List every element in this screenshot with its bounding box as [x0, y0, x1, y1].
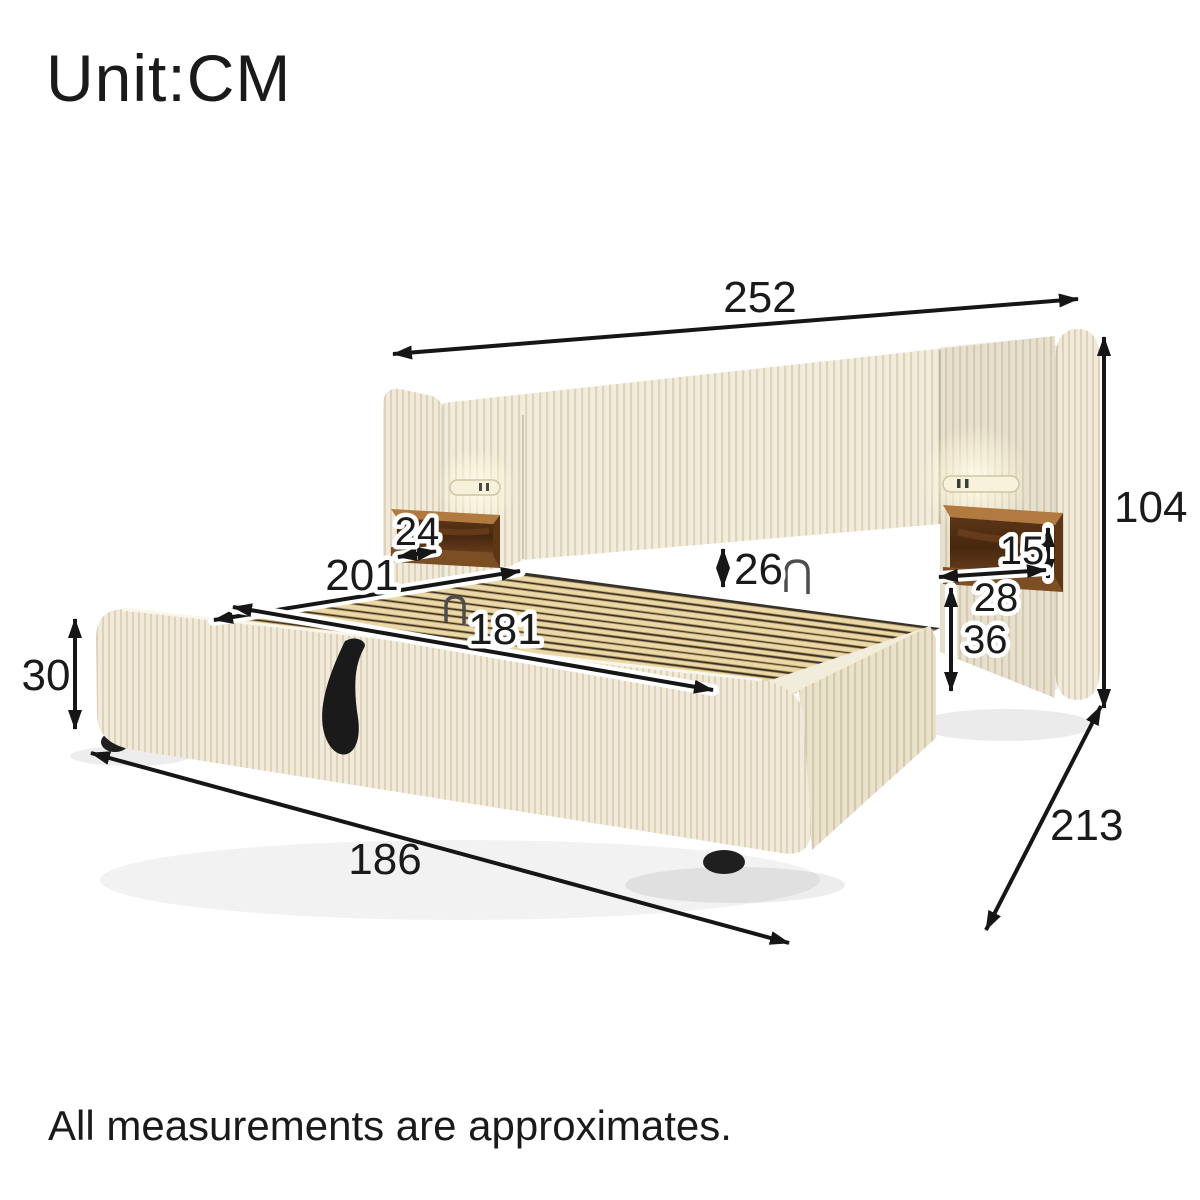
dimension-base-height: 30: [22, 619, 75, 729]
dimension-left-shelf-depth: 24: [395, 510, 440, 557]
lift-handle-right: [786, 561, 808, 594]
dim-left-shelf-depth-value: 24: [395, 510, 440, 554]
dim-shelf-width-value: 28: [974, 576, 1019, 620]
dimension-overall-width: 252: [393, 273, 1078, 354]
dimension-headboard-height: 104: [1104, 337, 1187, 708]
bed-foot-right: [703, 850, 745, 874]
dimension-headboard-gap: 26: [723, 545, 783, 594]
left-reading-light: [450, 480, 500, 495]
dim-shelf-to-base-value: 36: [963, 618, 1008, 662]
dim-overall-width-value: 252: [723, 273, 796, 322]
dim-headboard-height-value: 104: [1114, 483, 1187, 532]
dim-front-width-value: 186: [348, 835, 421, 884]
dim-slat-length-value: 201: [325, 551, 398, 600]
bed-illustration: 252 104 201 181 26 24: [0, 0, 1200, 1200]
dim-base-height-value: 30: [22, 651, 71, 700]
dim-slat-width-value: 181: [468, 605, 541, 654]
measurement-note: All measurements are approximates.: [48, 1102, 732, 1150]
bed-dimension-diagram: Unit:CM: [0, 0, 1200, 1200]
dim-overall-depth-value: 213: [1050, 801, 1123, 850]
dim-headboard-gap-value: 26: [734, 545, 783, 594]
right-reading-light: [943, 476, 1019, 492]
